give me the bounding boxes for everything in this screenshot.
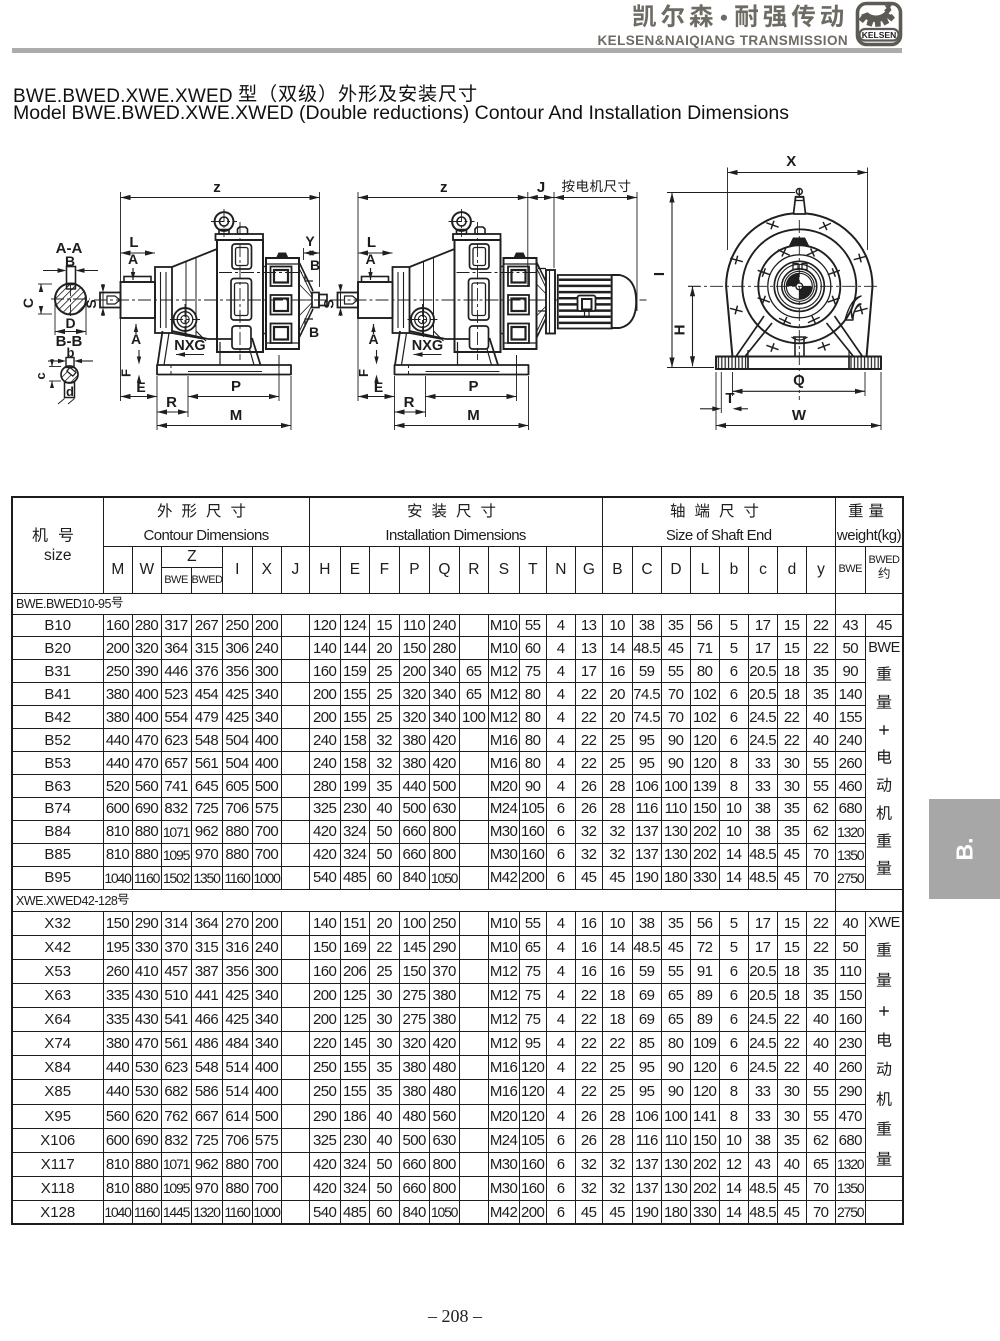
svg-text:T: T [725, 390, 734, 407]
svg-text:S: S [321, 299, 337, 308]
svg-text:L: L [367, 234, 376, 251]
svg-text:R: R [404, 394, 415, 411]
svg-text:Q: Q [793, 372, 805, 389]
svg-text:d: d [66, 384, 74, 399]
svg-text:A: A [365, 251, 375, 267]
svg-text:F: F [356, 369, 371, 377]
svg-text:H: H [672, 325, 689, 336]
svg-text:z: z [440, 179, 448, 196]
svg-text:A: A [128, 251, 138, 267]
svg-text:E: E [136, 379, 145, 395]
svg-text:R: R [166, 394, 177, 411]
svg-text:M: M [467, 407, 480, 424]
svg-text:J: J [537, 179, 545, 196]
svg-text:B: B [310, 257, 320, 273]
svg-text:z: z [213, 179, 221, 196]
svg-text:X: X [786, 153, 796, 170]
svg-text:I: I [651, 272, 668, 276]
svg-text:NXG: NXG [174, 338, 205, 354]
svg-text:B: B [309, 324, 319, 340]
svg-text:C: C [20, 298, 36, 308]
svg-text:NXG: NXG [412, 338, 443, 354]
svg-text:D: D [65, 315, 75, 331]
svg-text:L: L [129, 234, 138, 251]
svg-text:KELSEN: KELSEN [862, 30, 896, 40]
svg-text:M: M [230, 407, 243, 424]
svg-text:S: S [83, 299, 99, 308]
svg-text:c: c [33, 372, 48, 379]
svg-text:Y: Y [305, 233, 315, 249]
svg-text:E: E [374, 379, 383, 395]
svg-text:F: F [119, 369, 134, 377]
svg-text:P: P [468, 378, 478, 395]
svg-text:P: P [231, 378, 241, 395]
svg-text:W: W [792, 407, 807, 424]
